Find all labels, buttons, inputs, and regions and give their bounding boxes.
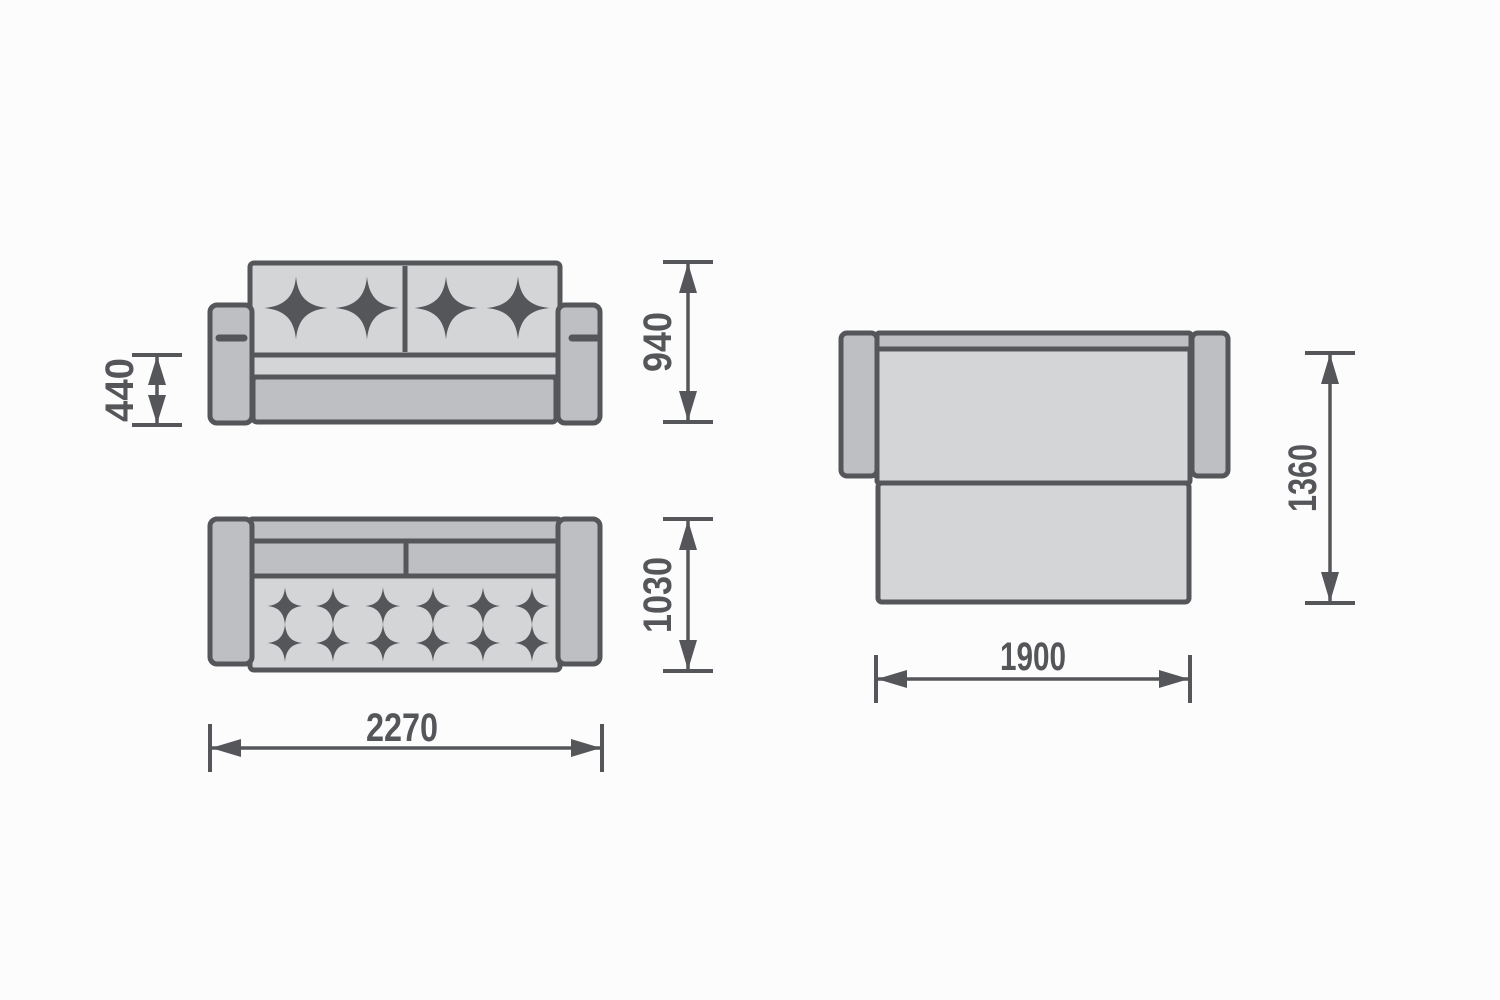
- arrowhead-left-icon: [211, 739, 241, 757]
- bed-armrest-right: [1192, 333, 1228, 476]
- arrowhead-down-icon: [679, 640, 697, 670]
- arrowhead-right-icon: [1159, 670, 1189, 688]
- dimension-overall-width: 2270: [210, 706, 602, 772]
- top-backrest-strip: [250, 519, 560, 541]
- dimension-overall-depth-label: 1030: [636, 557, 680, 633]
- dimension-bed-width-label: 1900: [1000, 635, 1066, 679]
- front-armrest-right: [558, 305, 600, 423]
- dimension-bed-width: 1900: [876, 635, 1190, 703]
- arrowhead-up-icon: [679, 520, 697, 550]
- arrowhead-down-icon: [679, 391, 697, 421]
- arrowhead-left-icon: [877, 670, 907, 688]
- bed-upper-mattress: [877, 349, 1190, 483]
- top-armrest-right: [558, 519, 600, 664]
- bed-view: [841, 333, 1228, 602]
- arrowhead-up-icon: [148, 356, 166, 385]
- dimension-overall-width-label: 2270: [366, 706, 438, 750]
- bed-lower-mattress: [878, 483, 1189, 602]
- arrowhead-down-icon: [148, 395, 166, 424]
- front-seat-band: [250, 355, 560, 377]
- dimension-bed-length-label: 1360: [1281, 444, 1325, 512]
- diagram-canvas: 440 940 1030 2270 1360: [0, 0, 1500, 1000]
- dimension-seat-height-label: 440: [98, 358, 142, 422]
- front-view: [210, 263, 600, 423]
- arrowhead-up-icon: [679, 263, 697, 293]
- front-armrest-left: [210, 305, 252, 423]
- arrowhead-up-icon: [1321, 354, 1339, 384]
- top-armrest-left: [210, 519, 252, 664]
- arrowhead-down-icon: [1321, 572, 1339, 602]
- bed-armrest-left: [841, 333, 877, 476]
- top-seat: [250, 576, 560, 670]
- top-view: [210, 519, 600, 670]
- sofa-dimension-diagram: 440 940 1030 2270 1360: [0, 0, 1500, 1000]
- arrowhead-right-icon: [571, 739, 601, 757]
- dimension-overall-height-label: 940: [636, 312, 680, 372]
- front-base: [253, 377, 556, 422]
- dimension-seat-height: 440: [98, 355, 182, 425]
- dimension-bed-length: 1360: [1281, 353, 1355, 603]
- dimension-overall-depth: 1030: [636, 519, 713, 671]
- dimension-overall-height: 940: [636, 262, 713, 422]
